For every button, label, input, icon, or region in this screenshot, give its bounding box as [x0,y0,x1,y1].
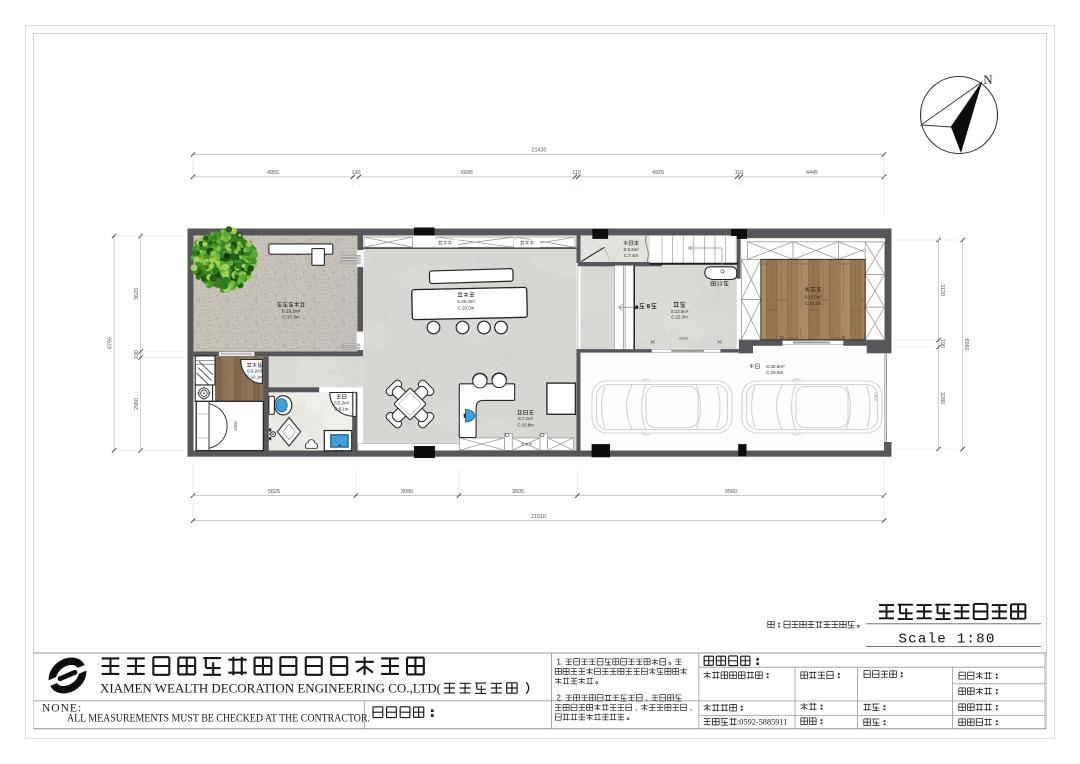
svg-text:1.: 1. [557,658,564,667]
svg-text:110: 110 [572,170,581,176]
svg-text:C:26.8m: C:26.8m [766,370,784,375]
svg-text:3605: 3605 [512,489,524,495]
svg-text:4445: 4445 [806,170,818,176]
svg-text:3620: 3620 [134,288,140,300]
svg-text:C:15.3m: C:15.3m [671,314,688,319]
svg-text:C:10.1m: C:10.1m [246,375,263,380]
svg-text:21430: 21430 [532,148,547,154]
svg-text:S:7.2m²: S:7.2m² [518,416,534,421]
svg-text:S:6.2m²: S:6.2m² [247,369,263,374]
svg-text:3280: 3280 [939,392,945,404]
svg-text:C:7.4m: C:7.4m [624,253,638,258]
svg-text:1500: 1500 [233,421,238,431]
svg-text:6560: 6560 [963,339,969,351]
svg-text::0592-5885911: :0592-5885911 [737,718,787,727]
svg-text:6795: 6795 [108,337,114,349]
svg-text:6695: 6695 [461,170,473,176]
svg-text:4955: 4955 [267,170,279,176]
svg-text:C:15.1m: C:15.1m [805,301,822,306]
svg-text:S:3.2m²: S:3.2m² [623,247,639,252]
svg-text:2.: 2. [557,694,564,703]
svg-text:190: 190 [134,350,140,359]
svg-text:C:10.8m: C:10.8m [517,422,534,427]
svg-text:S:13.5m²: S:13.5m² [804,295,822,300]
svg-text:190: 190 [352,170,361,176]
svg-text:9560: 9560 [725,489,737,495]
svg-text:S:13.6m²: S:13.6m² [671,309,689,314]
svg-text:2960: 2960 [134,398,140,410]
svg-text:S:30.5m²: S:30.5m² [766,364,785,369]
svg-text:C:17.3m: C:17.3m [282,315,300,320]
svg-text:2080: 2080 [679,336,689,341]
svg-text:ALL MEASUREMENTS MUST BE CHECK: ALL MEASUREMENTS MUST BE CHECKED AT THE … [67,713,370,725]
svg-text:XIAMEN WEALTH DECORATION ENGIN: XIAMEN WEALTH DECORATION ENGINEERING CO.… [100,682,441,696]
svg-text:S:16.2m²: S:16.2m² [282,308,301,313]
svg-text:5025: 5025 [268,489,280,495]
svg-text:C:20.5m: C:20.5m [458,306,475,311]
svg-text:Scale 1:80: Scale 1:80 [898,632,995,648]
svg-text:S:5.2m²: S:5.2m² [334,401,350,406]
svg-text:13: 13 [717,282,723,288]
svg-text:190: 190 [939,339,945,348]
svg-text:4925: 4925 [652,170,664,176]
svg-text:110: 110 [735,170,744,176]
svg-text:3090: 3090 [401,489,413,495]
svg-text:3120: 3120 [939,284,945,296]
svg-text:S:26.3m²: S:26.3m² [457,299,475,304]
svg-text:N: N [983,72,993,87]
svg-text:21510: 21510 [531,514,546,520]
svg-text:C:9.1m: C:9.1m [334,406,348,411]
